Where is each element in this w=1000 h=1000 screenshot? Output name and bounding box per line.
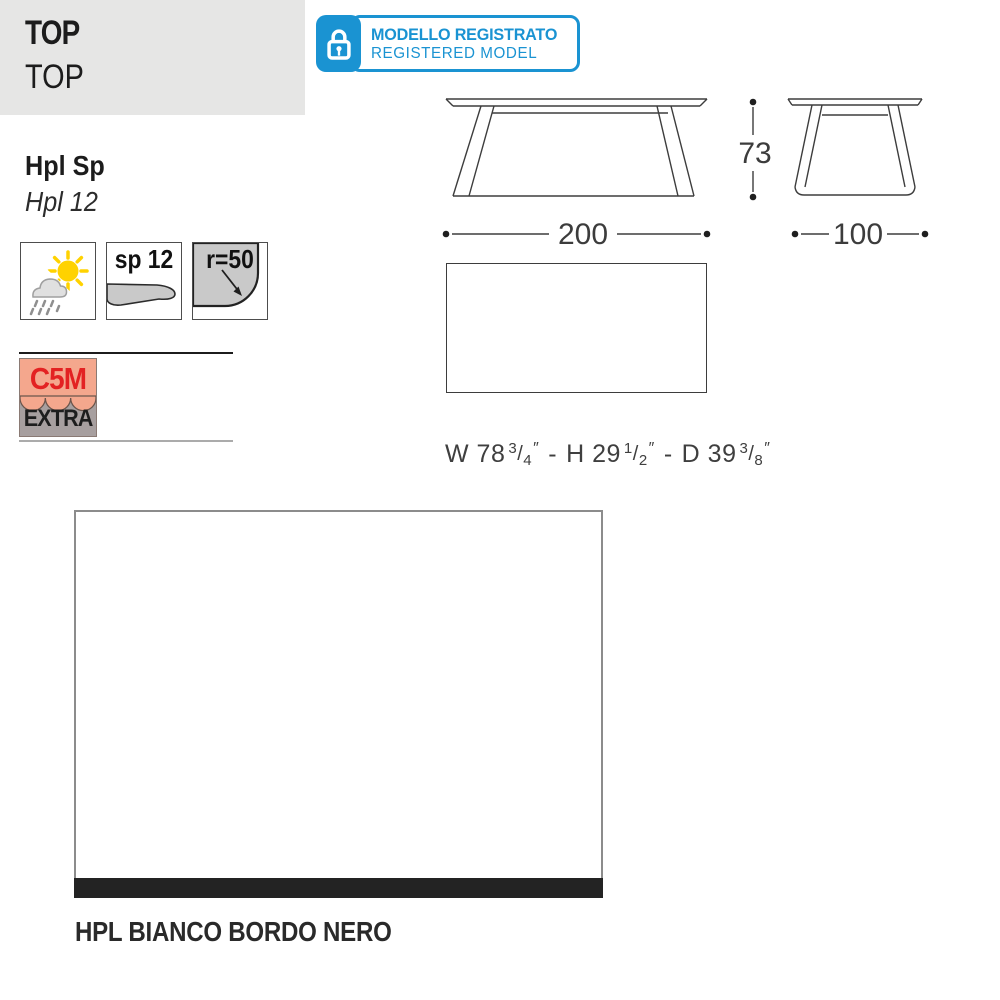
inch-mark: ″ — [764, 440, 770, 457]
dim-depth-label: D 39 — [682, 440, 737, 468]
icon-box-thickness: sp 12 — [106, 242, 182, 320]
page-subtitle: TOP — [25, 58, 84, 97]
front-view-drawing — [446, 99, 707, 196]
page-title: TOP — [25, 14, 79, 53]
header-box: TOP TOP — [0, 0, 305, 115]
registered-badge-line2: REGISTERED MODEL — [371, 45, 557, 63]
icon-box-weather — [20, 242, 96, 320]
certification-badge: C5M EXTRA — [19, 358, 97, 437]
dim-height-fraction: 1/2 — [624, 440, 648, 469]
dim-width-fraction: 3/4 — [508, 440, 532, 469]
side-view-drawing — [788, 99, 922, 195]
dash-separator: - — [548, 440, 557, 468]
material-italic-label: Hpl 12 — [25, 186, 98, 218]
swatch-edge-band — [74, 878, 603, 898]
registered-badge-text-box: MODELLO REGISTRATO REGISTERED MODEL — [350, 15, 580, 72]
spec-sheet-page: TOP TOP MODELLO REGISTRATO REGISTERED MO… — [0, 0, 1000, 1000]
weather-icon — [21, 243, 94, 318]
dimension-front-height: 73 — [738, 99, 771, 201]
registered-badge-line1: MODELLO REGISTRATO — [371, 25, 557, 45]
registered-model-badge: MODELLO REGISTRATO REGISTERED MODEL — [316, 15, 580, 72]
separator-line-bottom — [19, 440, 233, 442]
imperial-dimensions: W 783/4″-H 291/2″-D 393/8″ — [445, 440, 770, 469]
thickness-profile-icon — [107, 243, 180, 318]
dimension-side-depth: 100 — [792, 218, 929, 251]
finish-label: HPL BIANCO BORDO NERO — [75, 916, 392, 948]
separator-line-top — [19, 352, 233, 354]
dimension-front-width: 200 — [443, 218, 711, 251]
lock-icon — [316, 15, 361, 72]
svg-text:73: 73 — [738, 137, 771, 170]
svg-text:100: 100 — [833, 218, 883, 251]
certification-line1: C5M — [24, 361, 92, 397]
technical-drawing: 200 73 100 — [430, 85, 940, 255]
material-bold-label: Hpl Sp — [25, 150, 105, 182]
inch-mark: ″ — [533, 440, 539, 457]
inch-mark: ″ — [649, 440, 655, 457]
svg-text:200: 200 — [558, 218, 608, 251]
top-view-rectangle — [446, 263, 707, 393]
radius-label: r=50 — [197, 244, 262, 275]
icon-box-radius: r=50 — [192, 242, 268, 320]
dim-height-label: H 29 — [566, 440, 621, 468]
dim-depth-fraction: 3/8 — [739, 440, 763, 469]
dash-separator: - — [664, 440, 673, 468]
dim-width-label: W 78 — [445, 440, 505, 468]
finish-swatch — [74, 510, 603, 898]
certification-line2: EXTRA — [24, 405, 92, 433]
